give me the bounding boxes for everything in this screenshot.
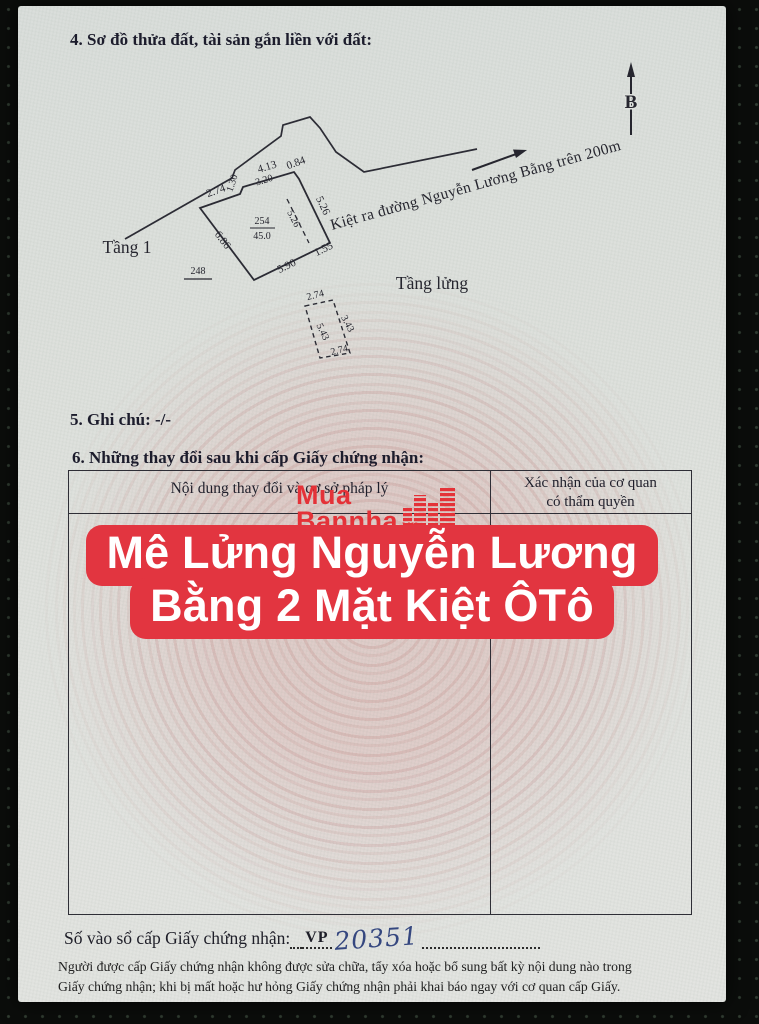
- footer-notice-line1: Người được cấp Giấy chứng nhận không đượ…: [58, 957, 710, 977]
- measurement-top-right: 0.84: [285, 154, 308, 172]
- table-header-col2-line2: có thẩm quyền: [490, 493, 691, 512]
- serial-number-handwritten: 20351: [333, 921, 419, 956]
- table-header-col2-line1: Xác nhận của cơ quan: [490, 474, 691, 493]
- parcel-area: 45.0: [253, 231, 271, 242]
- section5-note: 5. Ghi chú: -/-: [70, 410, 171, 430]
- parcel-number: 254: [255, 216, 270, 227]
- serial-row: Số vào sổ cấp Giấy chứng nhận: VP 20351: [64, 920, 540, 949]
- promo-banner: Mê Lửng Nguyễn Lương Bằng 2 Mặt Kiệt ÔTô: [18, 525, 726, 639]
- mezzanine-bottom: 2.74: [330, 343, 350, 358]
- north-arrow-icon: B: [625, 62, 638, 135]
- measurement-notch: 1.30: [225, 173, 241, 193]
- road-label: Kiệt ra đường Nguyễn Lương Bằng trên 200…: [329, 137, 623, 234]
- adjacent-parcel-number: 248: [191, 266, 206, 277]
- serial-label: Số vào sổ cấp Giấy chứng nhận:: [64, 928, 290, 949]
- footer-notice-line2: Giấy chứng nhận; khi bị mất hoặc hư hỏng…: [58, 977, 710, 997]
- north-label: B: [625, 92, 638, 113]
- parcel-number-area: 254 45.0: [250, 216, 275, 242]
- photo-backdrop: { "sections": { "s4_heading": "4. Sơ đồ …: [0, 0, 759, 1024]
- dotted-leader: [422, 931, 540, 949]
- floor1-label: Tầng 1: [102, 237, 151, 257]
- mezzanine-right: 3.43: [338, 314, 356, 335]
- dotted-leader: [290, 931, 302, 949]
- measurement-bottom-right: 1.55: [312, 239, 335, 258]
- table-header-col2: Xác nhận của cơ quan có thẩm quyền: [490, 474, 691, 512]
- adjacent-parcel: 248: [184, 266, 212, 279]
- measurement-top-inner: 3.20: [254, 173, 274, 189]
- mezzanine-left: 5.43: [314, 322, 331, 343]
- certificate-page: 4. Sơ đồ thửa đất, tài sản gắn liền với …: [18, 6, 726, 1002]
- mezzanine-label: Tầng lửng: [396, 273, 468, 293]
- banner-line1: Mê Lửng Nguyễn Lương: [86, 525, 657, 586]
- measurement-top-left: 2.74: [205, 182, 228, 200]
- section6-heading: 6. Những thay đổi sau khi cấp Giấy chứng…: [72, 448, 424, 468]
- plot-diagram: B Kiệt ra đường Nguyễn Lương Bằng trên 2…: [48, 46, 708, 376]
- banner-line2: Bằng 2 Mặt Kiệt ÔTô: [130, 578, 614, 639]
- serial-prefix: VP: [302, 929, 331, 949]
- mezzanine-top: 2.74: [306, 288, 326, 303]
- footer-notice: Người được cấp Giấy chứng nhận không đượ…: [58, 957, 710, 998]
- measurement-split: 5.26: [284, 209, 302, 230]
